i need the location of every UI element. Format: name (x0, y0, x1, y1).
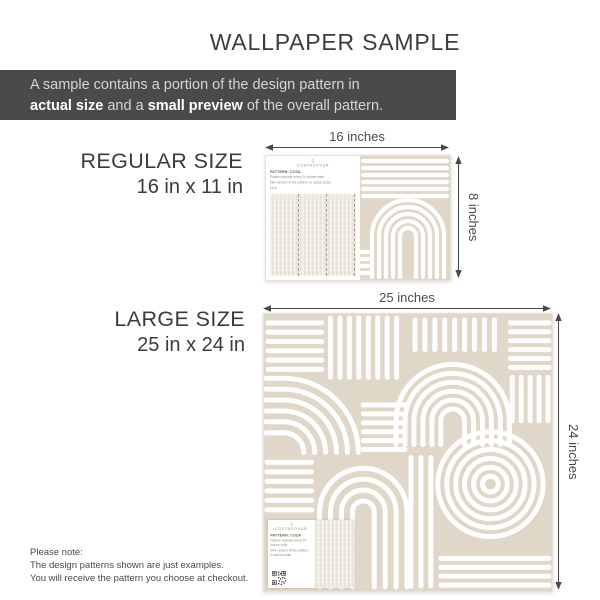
banner-mid: and a (103, 98, 147, 114)
wallpaper-sample-infographic: WALLPAPER SAMPLE A sample contains a por… (0, 0, 600, 600)
regular-size-title: REGULAR SIZE (0, 148, 243, 174)
regular-size-heading: REGULAR SIZE 16 in x 11 in (0, 148, 243, 200)
pattern-info-line1: Pattern repeats every 24 inches wide (270, 175, 356, 179)
qr-code (272, 571, 286, 585)
large-width-label: 25 inches (263, 290, 551, 305)
regular-sample-info-panel: COSTACOVER PATTERN: COZA Pattern repeats… (266, 156, 360, 280)
banner-bold-actual-size: actual size (30, 98, 103, 114)
large-mini-preview (314, 520, 354, 588)
regular-height-label: 8 inches (466, 156, 481, 278)
brand-block: COSTACOVER (270, 522, 312, 531)
regular-mini-preview (270, 194, 356, 276)
note-line1: Please note: (30, 546, 248, 559)
large-width-arrow (263, 304, 551, 313)
large-sample-info-label: COSTACOVER PATTERN: COZA Pattern repeats… (268, 520, 354, 588)
note-line3: You will receive the pattern you choose … (30, 572, 248, 585)
banner-tail: of the overall pattern. (243, 98, 383, 114)
banner-line1: A sample contains a portion of the desig… (30, 77, 360, 93)
large-size-title: LARGE SIZE (0, 306, 245, 332)
large-height-arrow (554, 313, 563, 590)
page-title: WALLPAPER SAMPLE (0, 29, 600, 56)
brand-block: COSTACOVER (270, 158, 356, 167)
large-sample-card: COSTACOVER PATTERN: COZA Pattern repeats… (263, 313, 553, 592)
regular-width-arrow (265, 143, 449, 152)
pattern-info-line2: Mini version of the pattern, in actual s… (270, 549, 312, 558)
brand-glyph-icon (311, 158, 316, 163)
note-line2: The design patterns shown are just examp… (30, 559, 248, 572)
large-height-label: 24 inches (566, 313, 581, 590)
regular-height-arrow (454, 156, 463, 278)
regular-size-dimensions: 16 in x 11 in (0, 174, 243, 200)
brand-name: COSTACOVER (275, 527, 307, 531)
brand-name: COSTACOVER (297, 164, 329, 168)
large-sample-info-panel: COSTACOVER PATTERN: COZA Pattern repeats… (268, 520, 314, 588)
cut-line (354, 194, 355, 276)
info-banner: A sample contains a portion of the desig… (0, 70, 456, 120)
regular-width-label: 16 inches (265, 129, 449, 144)
pattern-name-label: PATTERN: COZA (270, 534, 312, 538)
pattern-info-line1: Pattern repeats every 24 inches wide (270, 539, 312, 548)
mini-arrow-label: 24 in (270, 187, 356, 190)
large-size-dimensions: 25 in x 24 in (0, 332, 245, 358)
brand-glyph-icon (289, 522, 294, 527)
regular-sample-card: COSTACOVER PATTERN: COZA Pattern repeats… (265, 155, 451, 281)
footer-note: Please note: The design patterns shown a… (30, 546, 248, 585)
wallpaper-pattern-regular (360, 156, 450, 280)
large-size-heading: LARGE SIZE 25 in x 24 in (0, 306, 245, 358)
pattern-name-label: PATTERN: COZA (270, 170, 356, 174)
pattern-info-line2: Mini version of the pattern, in actual s… (270, 181, 356, 185)
cut-line (326, 194, 327, 276)
banner-bold-small-preview: small preview (148, 98, 243, 114)
cut-line (298, 194, 299, 276)
